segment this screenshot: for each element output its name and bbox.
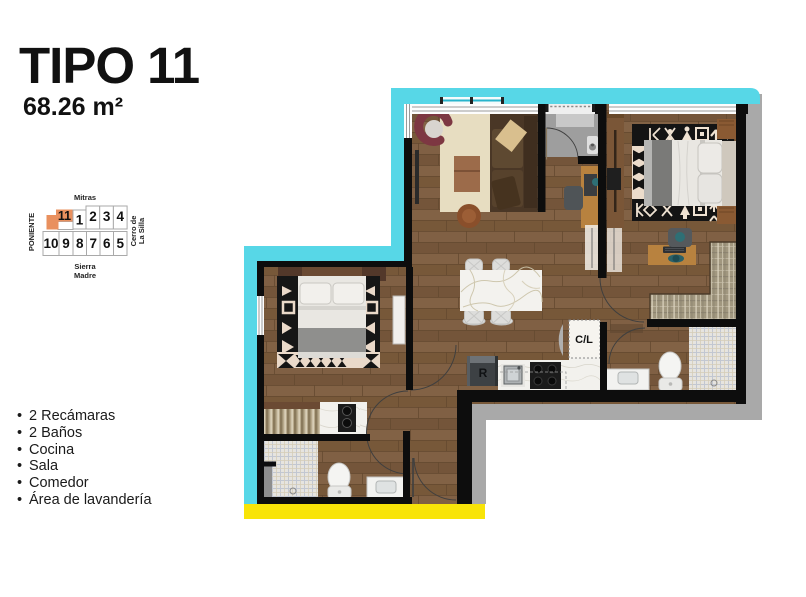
svg-text:3: 3 xyxy=(103,209,111,224)
svg-text:7: 7 xyxy=(89,236,97,251)
svg-text:2: 2 xyxy=(89,209,97,224)
svg-text:C/L: C/L xyxy=(575,334,593,346)
svg-text:11: 11 xyxy=(58,209,71,223)
svg-text:6: 6 xyxy=(103,236,111,251)
svg-text:5: 5 xyxy=(116,236,124,251)
svg-text:Mitras: Mitras xyxy=(74,193,96,202)
svg-text:1: 1 xyxy=(76,213,84,228)
svg-text:R: R xyxy=(479,366,488,380)
svg-text:Madre: Madre xyxy=(74,271,96,280)
svg-text:4: 4 xyxy=(117,209,125,224)
svg-text:9: 9 xyxy=(62,236,70,251)
svg-text:10: 10 xyxy=(43,236,58,251)
svg-text:La Silla: La Silla xyxy=(137,217,146,244)
svg-text:Sierra: Sierra xyxy=(74,262,96,271)
svg-text:8: 8 xyxy=(76,236,84,251)
svg-text:PONIENTE: PONIENTE xyxy=(27,213,36,251)
